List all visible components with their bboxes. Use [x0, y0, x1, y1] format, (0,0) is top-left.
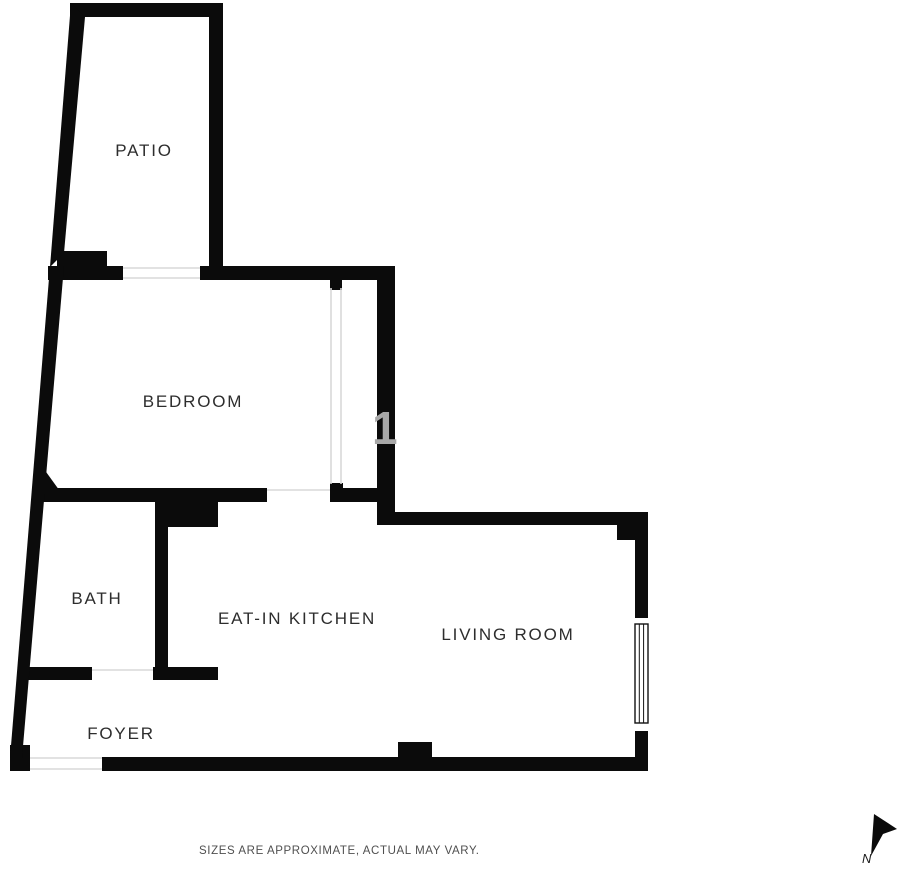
room-label-patio: PATIO: [115, 141, 173, 161]
left-wall: [10, 266, 64, 758]
wall-bedroom-top-wall-right: [200, 266, 395, 280]
room-label-bath: BATH: [71, 589, 122, 609]
wall-bottom-wall: [102, 757, 648, 771]
wall-bath-kitchen-divider: [155, 502, 168, 679]
north-arrow: [871, 814, 897, 856]
wall-bottom-wall-bump: [398, 742, 432, 757]
room-label-kitchen: EAT-IN KITCHEN: [218, 609, 376, 629]
living-room-window: [635, 624, 648, 723]
wall-bedroom-bottom-wall: [42, 488, 267, 502]
north-label: N: [862, 851, 871, 866]
wall-bedroom-bottom-wall-right: [330, 488, 395, 502]
disclaimer-text: SIZES ARE APPROXIMATE, ACTUAL MAY VARY.: [199, 845, 480, 857]
patio-left-wall: [50, 3, 85, 267]
room-label-foyer: FOYER: [87, 724, 155, 744]
window-layer: [635, 624, 648, 723]
wall-bath-bottom-wall-left: [27, 667, 92, 680]
watermark-digit: 1: [372, 405, 398, 451]
room-label-living: LIVING ROOM: [441, 625, 574, 645]
room-label-bedroom: BEDROOM: [143, 392, 243, 412]
wall-living-top-wall: [377, 512, 648, 525]
wall-patio-top-wall: [70, 3, 223, 17]
wall-patio-right-wall: [209, 3, 223, 280]
wall-right-wall-above-window: [635, 512, 648, 618]
wall-bath-bottom-wall-right: [153, 667, 218, 680]
wall-patio-step: [57, 251, 107, 267]
wall-bedroom-right-heavy-wall: [377, 266, 395, 525]
floorplan-canvas: PATIOBEDROOMBATHEAT-IN KITCHENLIVING ROO…: [0, 0, 904, 872]
